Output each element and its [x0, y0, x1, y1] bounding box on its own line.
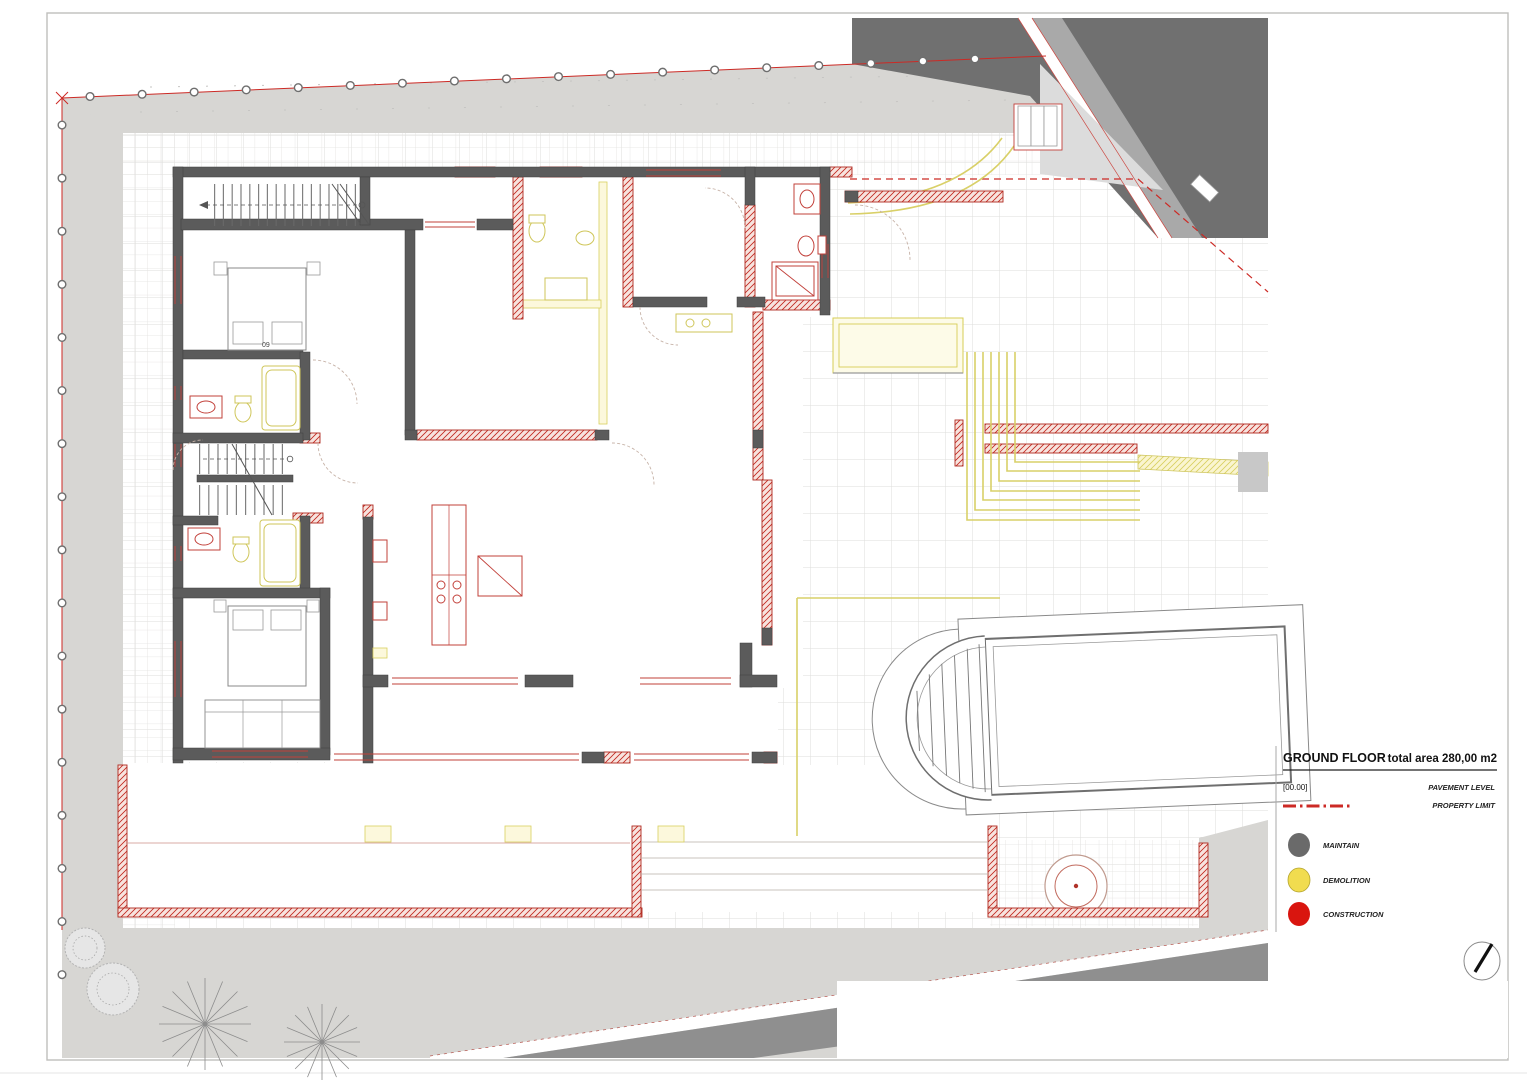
bed-2	[214, 600, 319, 686]
kitchen-sink	[373, 540, 387, 562]
planter	[833, 318, 963, 373]
room-number: 09	[262, 342, 270, 349]
construction-label: CONSTRUCTION	[1323, 910, 1384, 919]
kitchenette-demolition	[676, 314, 732, 332]
pavement-level-code: [00.00]	[1283, 783, 1307, 792]
bed-1: 09	[214, 262, 320, 350]
property-limit-label: PROPERTY LIMIT	[1432, 801, 1496, 810]
basin	[576, 231, 594, 245]
demolition-swatch	[1288, 868, 1310, 892]
wardrobe	[205, 700, 320, 748]
entrance-steps	[1014, 104, 1062, 150]
demolition-label: DEMOLITION	[1323, 876, 1371, 885]
drawing-canvas: 09	[0, 0, 1527, 1080]
total-area: total area 280,00 m2	[1388, 753, 1497, 765]
floor-plan-sheet: 09	[0, 0, 1527, 1080]
garden-block	[1238, 452, 1268, 492]
pavement-level-label: PAVEMENT LEVEL	[1428, 783, 1495, 792]
pool	[868, 605, 1311, 819]
maintain-label: MAINTAIN	[1323, 841, 1360, 850]
maintain-swatch	[1288, 833, 1310, 857]
sheet-title: GROUND FLOOR	[1283, 751, 1386, 765]
north-arrow-icon	[1464, 942, 1500, 980]
sheet-mask	[837, 981, 1508, 1058]
legend: MAINTAIN DEMOLITION CONSTRUCTION	[1288, 833, 1384, 926]
construction-swatch	[1288, 902, 1310, 926]
